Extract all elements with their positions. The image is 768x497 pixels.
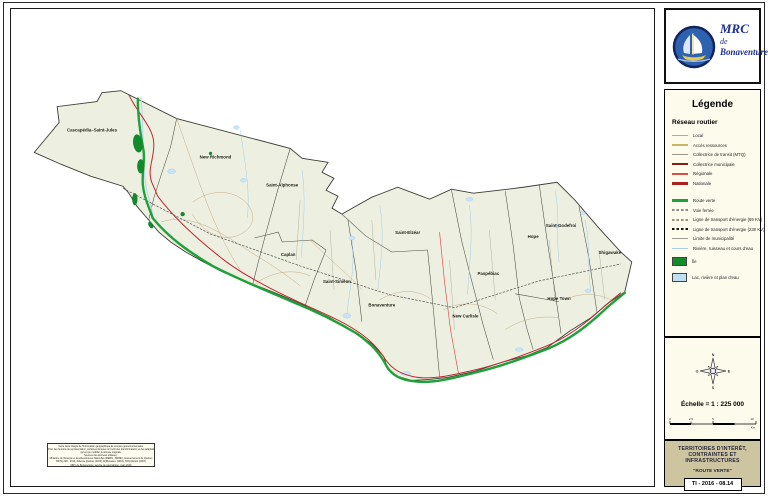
legend-label: Accès ressources — [693, 143, 727, 148]
dashed-line-swatch — [672, 209, 688, 211]
legend-label: Voie ferrée — [693, 208, 714, 213]
title-block: TERRITOIRES D'INTÉRÊT, CONTRAINTES ET IN… — [664, 440, 761, 487]
map-frame: Cascapédia–Saint-Jules New Richmond Sain… — [10, 8, 655, 487]
line-swatch — [672, 135, 688, 136]
label-hope-town: Hope Town — [547, 296, 571, 301]
compass-rose-icon: N E S O — [692, 350, 734, 392]
legend-item-collectrice-mtq: Collectrice de transit (MTQ) — [665, 150, 760, 160]
label-hope: Hope — [528, 234, 540, 239]
legend-label: Île — [692, 259, 697, 264]
credit-line: MRC de Bonaventure, service de géomatiqu… — [48, 464, 154, 467]
legend-section-roads: Réseau routier — [672, 119, 760, 126]
scalebar-10: 10 — [750, 417, 754, 421]
scalebar-5: 5 — [712, 417, 714, 421]
legend-item-voie-ferree: Voie ferrée — [665, 206, 760, 216]
mrc-sailboat-logo-icon — [672, 25, 716, 69]
label-shigawake: Shigawake — [599, 250, 622, 255]
legend-label: Route verte — [693, 198, 715, 203]
legend-label: Régionale — [693, 171, 712, 176]
legend-item-riviere: Rivière, ruisseau et cours d'eau — [665, 244, 760, 254]
scale-bar: 0 2,5 5 10 Km — [669, 416, 757, 429]
compass-e: E — [727, 369, 730, 373]
line-swatch — [672, 199, 688, 202]
legend-item-energie-69: Ligne de transport d'énergie (69 KV) — [665, 215, 760, 225]
map-title-line-2: CONTRAINTES ET INFRASTRUCTURES — [665, 452, 760, 464]
line-swatch — [672, 238, 688, 239]
compass-s: S — [711, 386, 714, 390]
legend-label: Ligne de transport d'énergie (69 KV) — [693, 217, 762, 222]
logo-line-2: de — [720, 38, 768, 46]
label-saint-elzear: Saint-Elzéar — [395, 230, 420, 235]
scalebar-2-5: 2,5 — [688, 417, 693, 421]
legend-label: Ligne de transport d'énergie (230 KV) — [693, 227, 765, 232]
area-swatch — [672, 257, 687, 266]
line-swatch — [672, 182, 688, 185]
legend-item-limite: Limite de municipalité — [665, 234, 760, 244]
label-paspebiac: Paspébiac — [478, 271, 500, 276]
scalebar-0: 0 — [669, 417, 671, 421]
label-cascapedia: Cascapédia–Saint-Jules — [67, 127, 118, 132]
map-subtitle: "ROUTE VERTE" — [665, 469, 760, 474]
label-saint-godefroi: Saint-Godefroi — [546, 223, 576, 228]
legend-label: Lac, rivière et plan d'eau — [692, 275, 739, 280]
legend-label: Rivière, ruisseau et cours d'eau — [693, 246, 753, 251]
map-sheet-code: TI - 2016 - 08.14 — [684, 478, 742, 491]
legend-label: Collectrice municipale — [693, 162, 735, 167]
legend-title: Légende — [665, 99, 760, 110]
legend-item-collectrice-municipale: Collectrice municipale — [665, 160, 760, 170]
legend-item-regionale: Régionale — [665, 169, 760, 179]
logo-text: MRC de Bonaventure — [720, 22, 768, 57]
dashed-line-swatch — [672, 219, 688, 221]
line-swatch — [672, 154, 688, 155]
map-canvas[interactable]: Cascapédia–Saint-Jules New Richmond Sain… — [11, 9, 654, 486]
label-saint-simeon: Saint-Siméon — [323, 279, 351, 284]
territory-shape — [34, 91, 631, 381]
line-swatch — [672, 163, 688, 165]
legend-panel: Légende Réseau routier Local Accès resso… — [664, 89, 761, 337]
legend-label: Limite de municipalité — [693, 236, 734, 241]
scalebar-unit: Km — [750, 426, 755, 430]
label-new-carlisle: New Carlisle — [452, 314, 479, 319]
legend-item-route-verte: Route verte — [665, 196, 760, 206]
legend-label: Collectrice de transit (MTQ) — [693, 152, 746, 157]
line-swatch — [672, 248, 688, 249]
legend-item-local: Local — [665, 131, 760, 141]
line-swatch — [672, 144, 688, 146]
legend-label: Nationale — [693, 181, 711, 186]
legend-item-energie-230: Ligne de transport d'énergie (230 KV) — [665, 225, 760, 235]
scale-panel: N E S O Échelle = 1 : 225 000 0 2,5 5 10… — [664, 337, 761, 440]
dashed-line-swatch — [672, 228, 688, 230]
legend-item-ile: Île — [665, 253, 760, 269]
label-caplan: Caplan — [281, 252, 296, 257]
scale-text: Échelle = 1 : 225 000 — [665, 401, 760, 408]
logo-line-1: MRC — [720, 22, 768, 36]
compass-o: O — [695, 369, 698, 373]
map-credits-note: Cette carte intègre de l'information géo… — [47, 443, 155, 467]
compass-n: N — [711, 353, 714, 357]
legend-item-nationale: Nationale — [665, 179, 760, 189]
legend-label: Local — [693, 133, 703, 138]
label-saint-alphonse: Saint-Alphonse — [266, 182, 299, 187]
area-swatch — [672, 273, 687, 282]
legend-item-acces: Accès ressources — [665, 141, 760, 151]
legend-item-lac: Lac, rivière et plan d'eau — [665, 269, 760, 285]
logo-line-3: Bonaventure — [720, 48, 768, 57]
logo-box: MRC de Bonaventure — [664, 8, 761, 84]
label-bonaventure: Bonaventure — [368, 303, 395, 308]
line-swatch — [672, 173, 688, 175]
label-new-richmond: New Richmond — [200, 154, 232, 159]
